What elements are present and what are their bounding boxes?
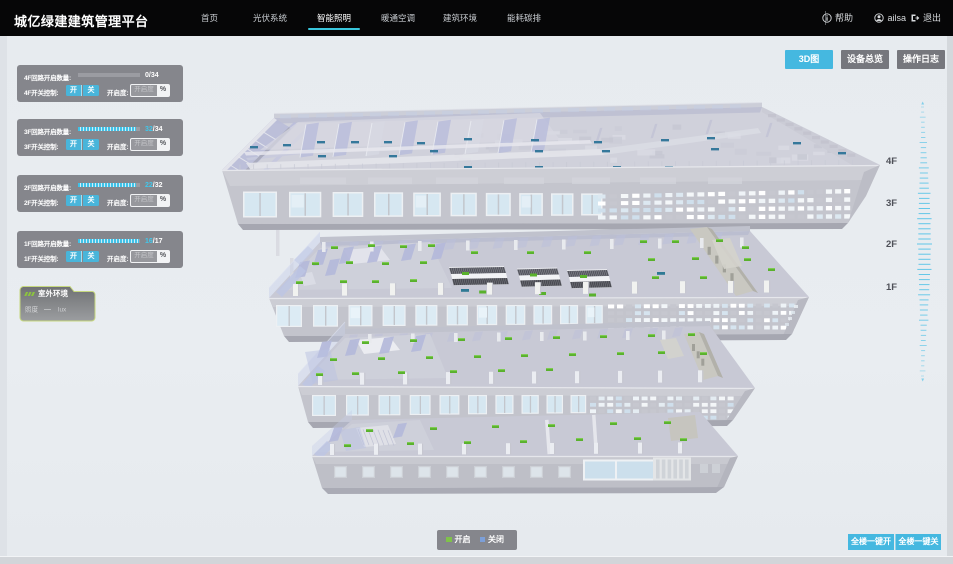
svg-text:室外环境: 室外环境 <box>38 288 68 298</box>
svg-text:照度: 照度 <box>25 305 39 314</box>
svg-text:—: — <box>44 307 51 314</box>
svg-text:lux: lux <box>58 307 67 314</box>
